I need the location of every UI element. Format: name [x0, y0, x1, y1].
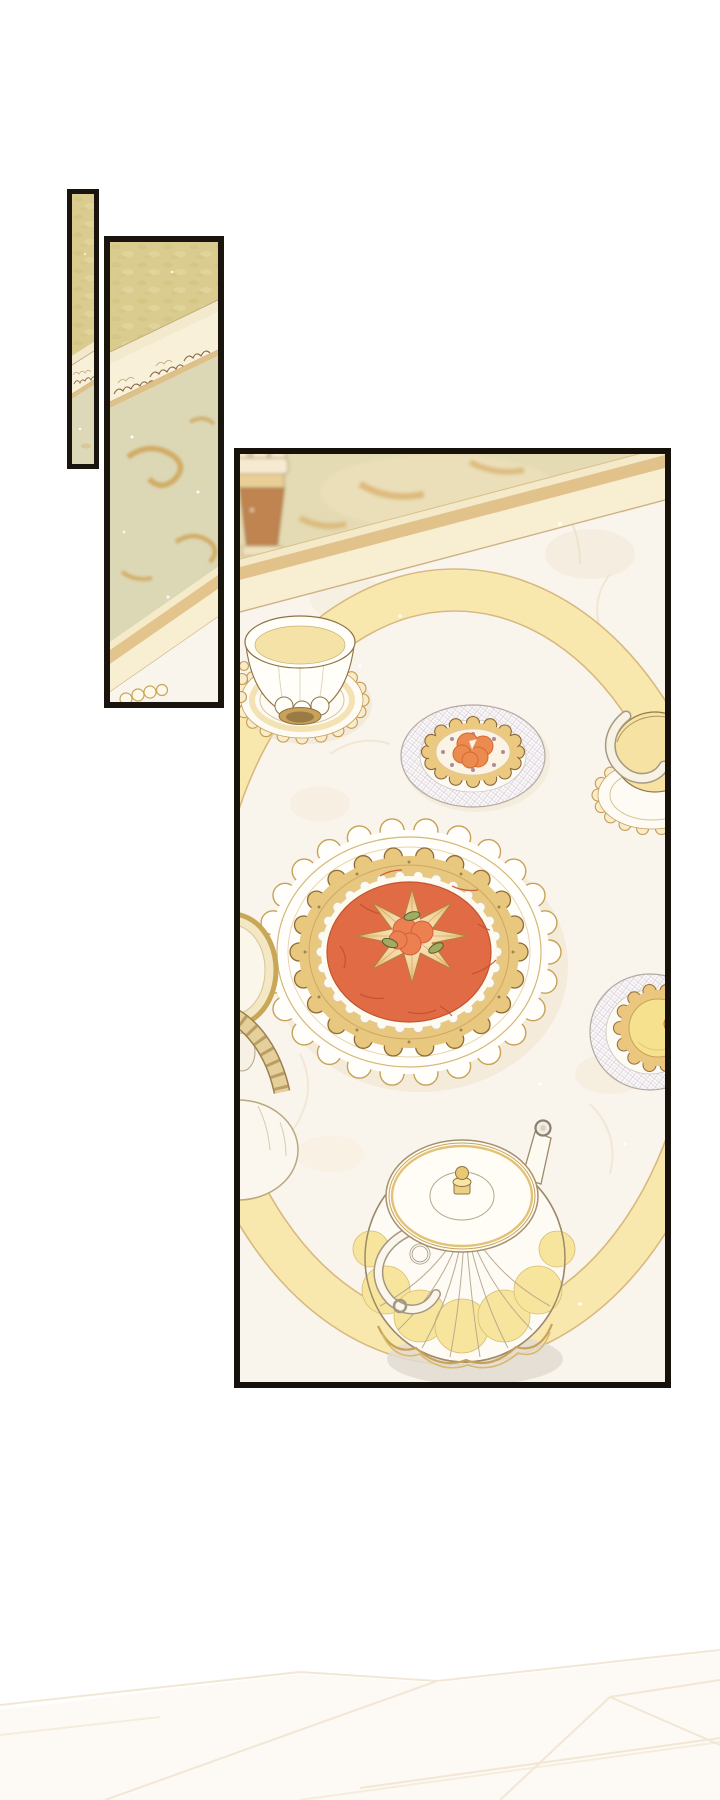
panel-sliver-art [72, 194, 94, 464]
cup-interior [255, 626, 345, 664]
panel-main [234, 448, 671, 1388]
apricot-tartlet-plate [401, 705, 545, 807]
wall-gold [72, 194, 94, 356]
fade-sketch [0, 1560, 720, 1800]
panel-main-art [240, 454, 665, 1382]
sparkle [79, 428, 81, 430]
comic-page [0, 0, 720, 1800]
panel-column [104, 236, 224, 708]
panel-column-art [110, 242, 218, 702]
teapot-lid [386, 1140, 538, 1252]
panel-sliver [67, 189, 99, 469]
teacup-left [240, 616, 369, 744]
grand-tart [257, 819, 561, 1085]
sparkle [171, 271, 174, 274]
